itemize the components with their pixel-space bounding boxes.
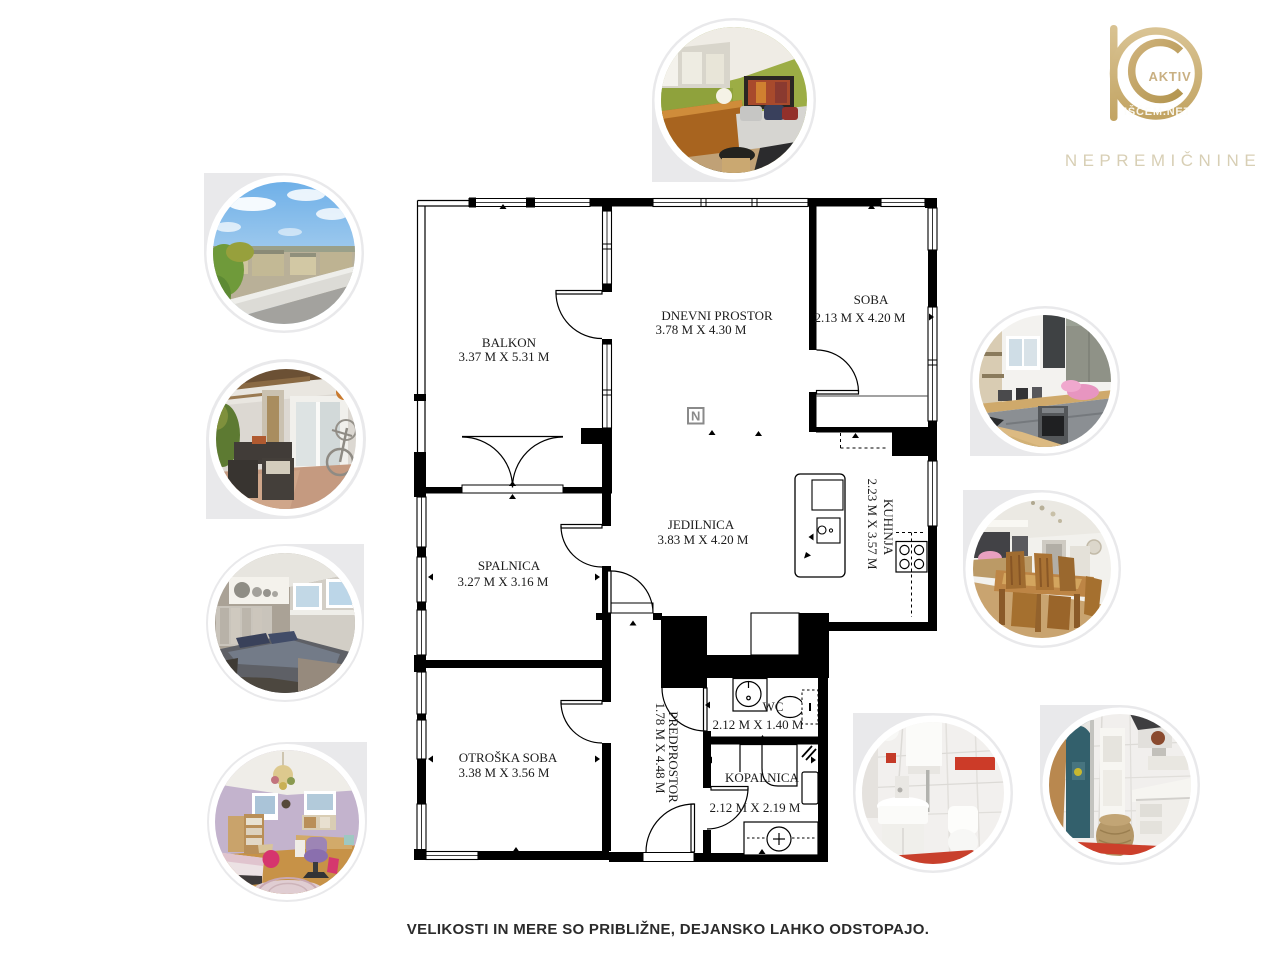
svg-text:3.83 M X 4.20 M: 3.83 M X 4.20 M <box>657 532 748 547</box>
svg-text:SOBA: SOBA <box>854 292 889 307</box>
svg-text:3.37 M X 5.31 M: 3.37 M X 5.31 M <box>458 349 549 364</box>
svg-text:2.23 M X 3.57 M: 2.23 M X 3.57 M <box>865 478 880 569</box>
svg-text:3.78 M X 4.30 M: 3.78 M X 4.30 M <box>655 322 746 337</box>
svg-text:N: N <box>691 409 700 424</box>
svg-text:IŠČEM.NET: IŠČEM.NET <box>1124 105 1191 118</box>
svg-text:3.38 M X 3.56 M: 3.38 M X 3.56 M <box>458 765 549 780</box>
svg-text:2.12 M X 1.40 M: 2.12 M X 1.40 M <box>712 717 803 732</box>
svg-text:1.78 M X 4.48 M: 1.78 M X 4.48 M <box>653 702 668 793</box>
svg-text:SPALNICA: SPALNICA <box>478 558 541 573</box>
svg-text:DNEVNI PROSTOR: DNEVNI PROSTOR <box>661 308 773 323</box>
svg-text:VELIKOSTI IN MERE SO PRIBLIŽNE: VELIKOSTI IN MERE SO PRIBLIŽNE, DEJANSKO… <box>407 920 929 938</box>
svg-text:WC: WC <box>763 699 784 714</box>
svg-text:AKTIV: AKTIV <box>1149 69 1192 84</box>
svg-text:JEDILNICA: JEDILNICA <box>668 517 735 532</box>
svg-text:3.27 M X 3.16 M: 3.27 M X 3.16 M <box>457 574 548 589</box>
svg-text:BALKON: BALKON <box>482 335 537 350</box>
svg-text:2.12 M X 2.19 M: 2.12 M X 2.19 M <box>709 800 800 815</box>
svg-text:2.13 M X 4.20 M: 2.13 M X 4.20 M <box>814 310 905 325</box>
svg-text:OTROŠKA SOBA: OTROŠKA SOBA <box>459 750 558 765</box>
svg-text:KOPALNICA: KOPALNICA <box>725 770 800 785</box>
svg-text:KUHINJA: KUHINJA <box>881 499 896 556</box>
svg-text:NEPREMIČNINE: NEPREMIČNINE <box>1065 151 1261 170</box>
